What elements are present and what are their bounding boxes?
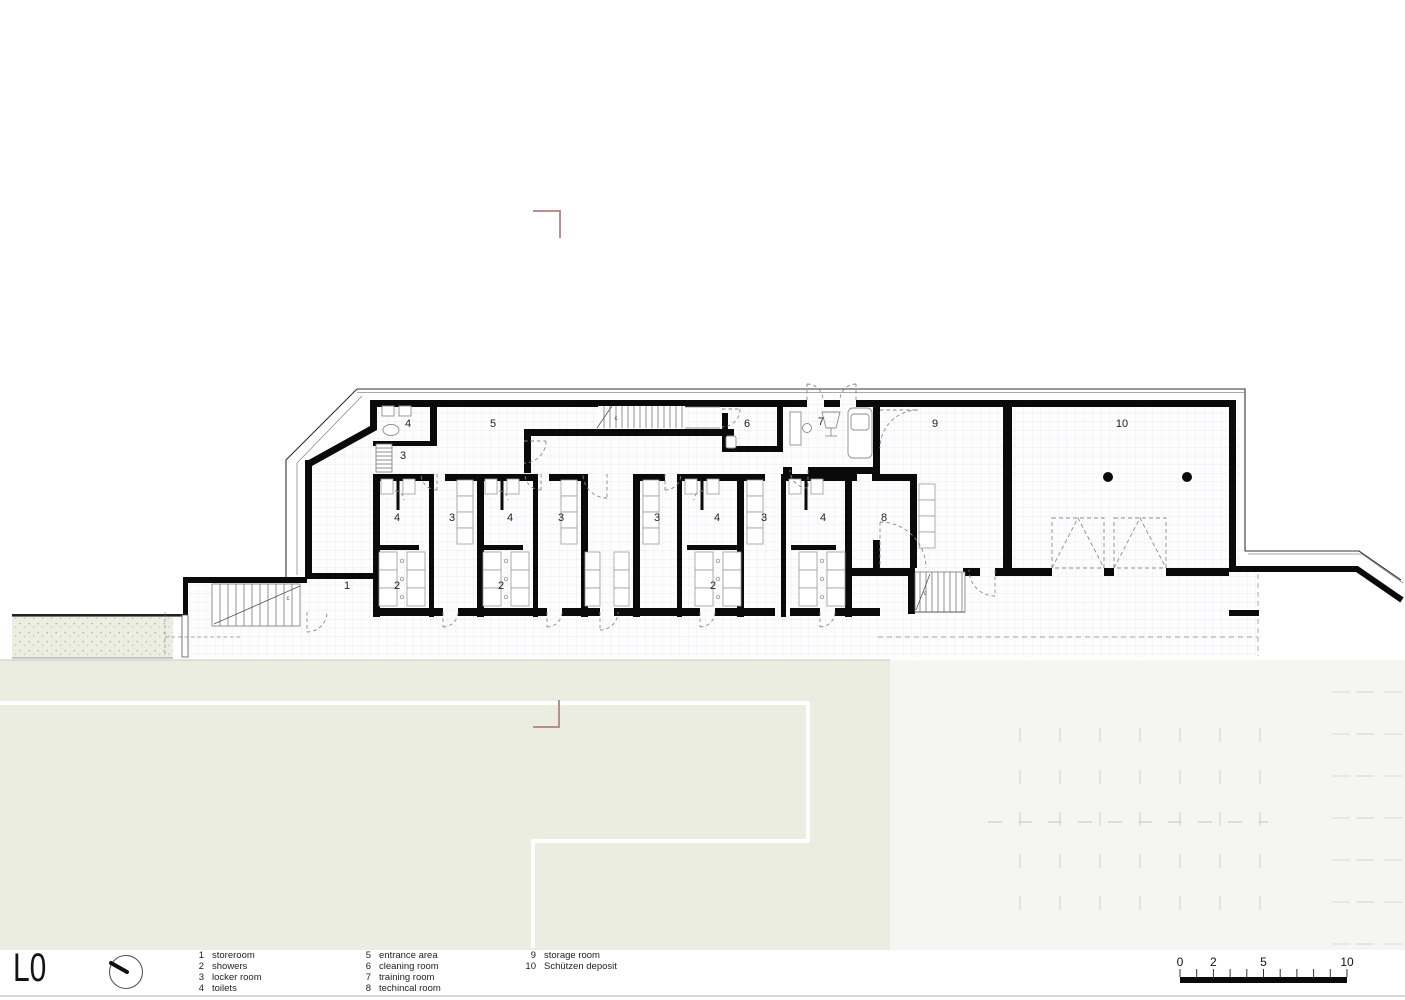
legend-item-label: entrance area — [379, 950, 438, 961]
floor-plan-canvas: 435679104343343481222ccc 02510 — [0, 0, 1405, 1000]
legend-item: 6cleaning room — [353, 961, 441, 972]
legend-column: 5entrance area6cleaning room7training ro… — [353, 950, 441, 994]
scale-label: 5 — [1260, 955, 1267, 969]
legend-item-label: toilets — [212, 983, 237, 994]
legend-item: 4toilets — [186, 983, 262, 994]
stair-small-left — [376, 444, 392, 472]
room-label: 6 — [744, 418, 750, 430]
room-label: 3 — [449, 512, 455, 524]
legend-item-number: 2 — [186, 961, 212, 972]
legend-item-number: 7 — [353, 972, 379, 983]
scale-label: 2 — [1210, 955, 1217, 969]
legend-column: 1storeroom2showers3locker room4toilets — [186, 950, 262, 994]
legend-item: 3locker room — [186, 972, 262, 983]
legend: 1storeroom2showers3locker room4toilets5e… — [0, 950, 900, 998]
legend-item-label: techincal room — [379, 983, 441, 994]
gravel-strip — [12, 617, 173, 658]
room-label: 3 — [654, 512, 660, 524]
legend-item: 10Schützen deposit — [518, 961, 617, 972]
legend-item-number: 8 — [353, 983, 379, 994]
legend-item-number: 10 — [518, 961, 544, 972]
legend-item: 2showers — [186, 961, 262, 972]
scale-bar: 02510 — [1177, 955, 1354, 983]
room-label: 4 — [820, 512, 826, 524]
paving-edge-marks — [1328, 665, 1405, 945]
legend-item-label: showers — [212, 961, 247, 972]
room-label: 4 — [394, 512, 400, 524]
legend-item-label: locker room — [212, 972, 262, 983]
legend-item-number: 1 — [186, 950, 212, 961]
legend-item-label: storage room — [544, 950, 600, 961]
legend-item-number: 5 — [353, 950, 379, 961]
room-label: 2 — [498, 580, 504, 592]
stair-annotation: c — [287, 596, 290, 602]
room-label: 3 — [761, 512, 767, 524]
room-label: 10 — [1116, 418, 1128, 430]
legend-item: 1storeroom — [186, 950, 262, 961]
legend-item-number: 3 — [186, 972, 212, 983]
drawing-sheet: 435679104343343481222ccc 02510 L0 1store… — [0, 0, 1405, 1000]
legend-column: 9storage room10Schützen deposit — [518, 950, 617, 972]
legend-item-label: training room — [379, 972, 434, 983]
legend-item-number: 6 — [353, 961, 379, 972]
room-label: 2 — [394, 580, 400, 592]
legend-item: 5entrance area — [353, 950, 441, 961]
stair-annotation: c — [615, 416, 618, 422]
legend-item: 9storage room — [518, 950, 617, 961]
legend-item-label: storeroom — [212, 950, 255, 961]
stair-annotation: c — [924, 591, 927, 597]
room-label: 4 — [714, 512, 720, 524]
room-label: 8 — [881, 512, 887, 524]
room-label: 4 — [507, 512, 513, 524]
stair-terrace-right — [915, 572, 965, 612]
room-label: 4 — [405, 418, 411, 430]
room-label: 1 — [344, 580, 350, 592]
legend-item: 7training room — [353, 972, 441, 983]
scale-label: 10 — [1340, 955, 1354, 969]
room-label: 3 — [400, 450, 406, 462]
room-label: 5 — [490, 418, 496, 430]
legend-item-number: 9 — [518, 950, 544, 961]
room-label: 3 — [558, 512, 564, 524]
paving-grid-marks — [985, 715, 1270, 915]
legend-item-label: Schützen deposit — [544, 961, 617, 972]
legend-item-label: cleaning room — [379, 961, 439, 972]
retaining-wall — [1236, 569, 1402, 600]
room-label: 2 — [710, 580, 716, 592]
legend-item: 8techincal room — [353, 983, 441, 994]
room-label: 7 — [818, 416, 824, 428]
scale-label: 0 — [1177, 955, 1184, 969]
legend-item-number: 4 — [186, 983, 212, 994]
room-label: 9 — [932, 418, 938, 430]
ground-areas — [0, 660, 1405, 950]
stair-exterior-left — [212, 584, 300, 626]
